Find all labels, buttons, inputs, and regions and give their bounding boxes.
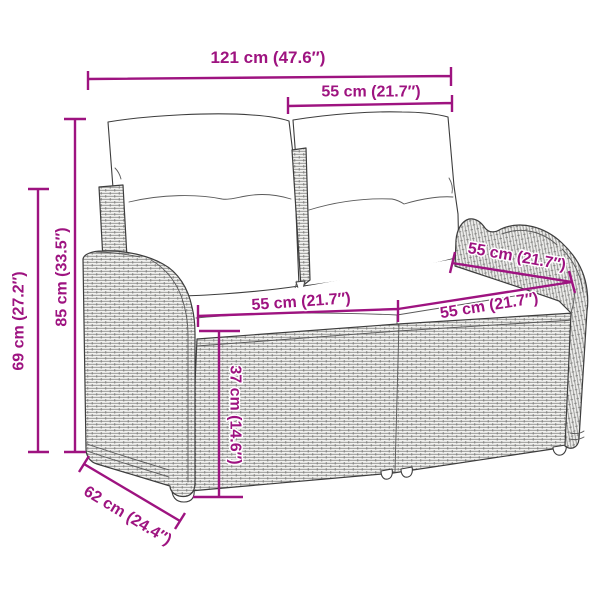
backrest-width-label: 55 cm (21.7″) xyxy=(321,84,420,101)
overall-width-label: 121 cm (47.6″) xyxy=(211,48,326,67)
left-armrest xyxy=(83,251,195,497)
total-height-label: 85 cm (33.5″) xyxy=(54,227,71,326)
armrest-height-label: 69 cm (27.2″) xyxy=(11,271,28,370)
seat-front-height-label: 37 cm (14.6″) xyxy=(226,365,243,464)
dim-backrest-width: 55 cm (21.7″) xyxy=(288,84,452,114)
back-cushion-right xyxy=(293,112,459,286)
left-back-post xyxy=(99,185,127,260)
bench-diagram-svg: 121 cm (47.6″) 55 cm (21.7″) 85 cm (33.5… xyxy=(0,0,600,600)
base-front-face xyxy=(190,313,574,491)
dim-armrest-height: 69 cm (27.2″) xyxy=(11,189,49,452)
overall-depth-label: 62 cm (24.4″) xyxy=(81,483,175,549)
dim-total-height: 85 cm (33.5″) xyxy=(54,119,86,452)
dimension-diagram: 121 cm (47.6″) 55 cm (21.7″) 85 cm (33.5… xyxy=(0,0,600,600)
